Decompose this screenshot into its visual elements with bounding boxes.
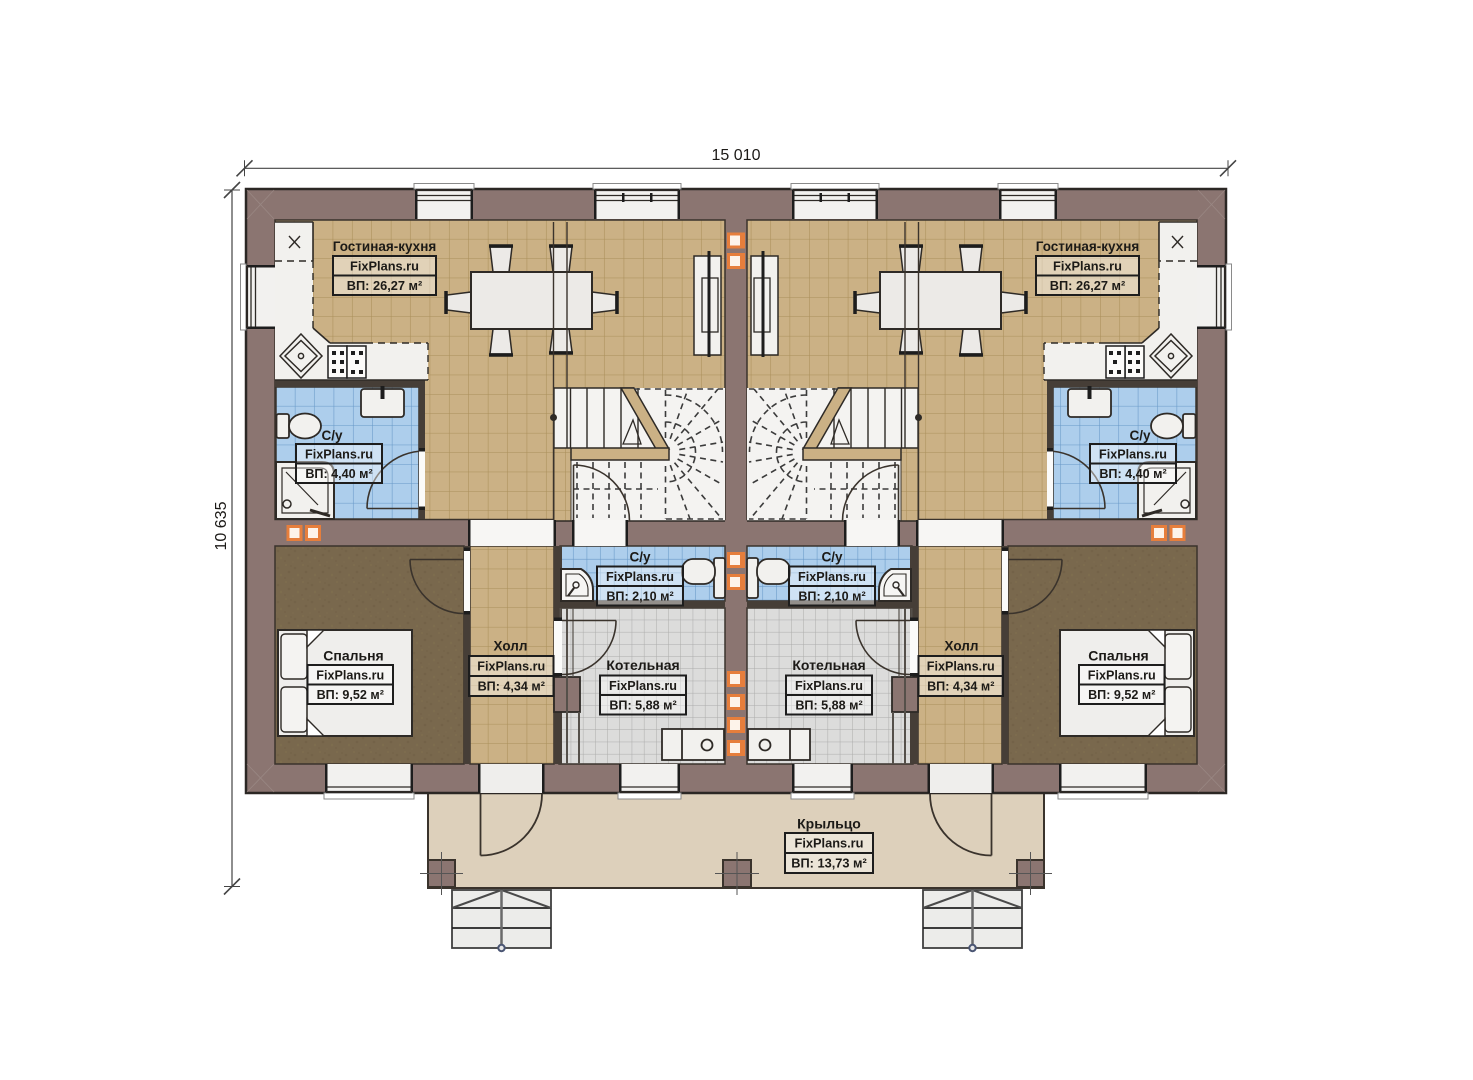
svg-text:Холл: Холл (494, 639, 528, 654)
svg-text:ВП: 4,34 м²: ВП: 4,34 м² (478, 680, 545, 694)
svg-text:FixPlans.ru: FixPlans.ru (606, 570, 674, 584)
svg-text:Крыльцо: Крыльцо (797, 816, 861, 832)
svg-text:FixPlans.ru: FixPlans.ru (927, 660, 995, 674)
svg-text:10 635: 10 635 (213, 501, 230, 550)
svg-text:FixPlans.ru: FixPlans.ru (609, 679, 677, 693)
svg-text:FixPlans.ru: FixPlans.ru (795, 679, 863, 693)
svg-text:FixPlans.ru: FixPlans.ru (1053, 258, 1122, 273)
svg-text:FixPlans.ru: FixPlans.ru (350, 258, 419, 273)
svg-text:ВП: 2,10 м²: ВП: 2,10 м² (606, 589, 673, 603)
svg-text:С/у: С/у (321, 428, 343, 443)
svg-text:С/у: С/у (1129, 428, 1151, 443)
svg-text:FixPlans.ru: FixPlans.ru (477, 660, 545, 674)
svg-text:15 010: 15 010 (712, 147, 761, 164)
svg-text:Спальня: Спальня (1088, 648, 1148, 664)
svg-text:ВП: 13,73 м²: ВП: 13,73 м² (791, 856, 867, 871)
svg-text:Котельная: Котельная (792, 657, 865, 673)
svg-text:ВП: 4,40 м²: ВП: 4,40 м² (1099, 467, 1166, 481)
svg-text:ВП: 9,52 м²: ВП: 9,52 м² (1088, 688, 1155, 702)
svg-text:FixPlans.ru: FixPlans.ru (316, 668, 384, 682)
svg-text:ВП: 26,27 м²: ВП: 26,27 м² (347, 278, 423, 293)
svg-text:FixPlans.ru: FixPlans.ru (305, 447, 373, 461)
svg-text:ВП: 2,10 м²: ВП: 2,10 м² (798, 589, 865, 603)
svg-text:ВП: 4,40 м²: ВП: 4,40 м² (305, 467, 372, 481)
svg-text:FixPlans.ru: FixPlans.ru (1099, 447, 1167, 461)
svg-text:Гостиная-кухня: Гостиная-кухня (333, 239, 436, 254)
svg-text:Спальня: Спальня (323, 648, 383, 664)
svg-text:ВП: 5,88 м²: ВП: 5,88 м² (795, 698, 862, 712)
svg-text:FixPlans.ru: FixPlans.ru (798, 570, 866, 584)
svg-text:ВП: 5,88 м²: ВП: 5,88 м² (609, 698, 676, 712)
svg-text:С/у: С/у (821, 550, 843, 565)
svg-text:ВП: 9,52 м²: ВП: 9,52 м² (317, 688, 384, 702)
svg-text:ВП: 26,27 м²: ВП: 26,27 м² (1050, 278, 1126, 293)
svg-text:С/у: С/у (629, 550, 651, 565)
svg-text:Котельная: Котельная (606, 657, 679, 673)
svg-text:Гостиная-кухня: Гостиная-кухня (1036, 239, 1139, 254)
svg-text:Холл: Холл (945, 639, 979, 654)
svg-text:FixPlans.ru: FixPlans.ru (1088, 668, 1156, 682)
svg-text:FixPlans.ru: FixPlans.ru (795, 836, 864, 851)
svg-text:ВП: 4,34 м²: ВП: 4,34 м² (927, 680, 994, 694)
